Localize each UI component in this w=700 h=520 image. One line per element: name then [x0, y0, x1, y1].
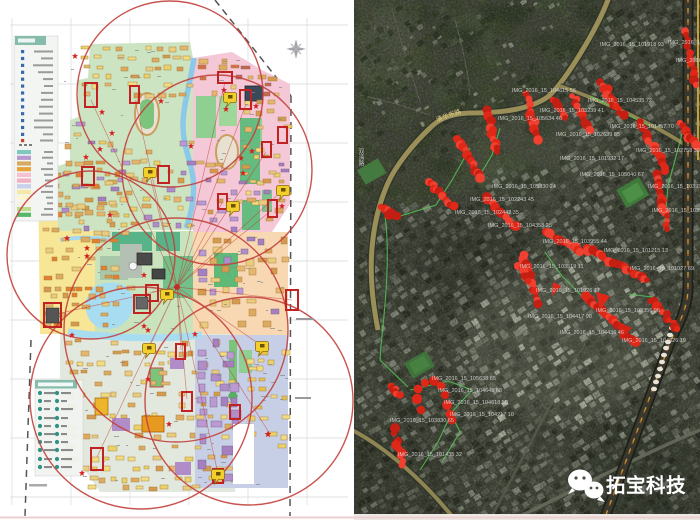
svg-text:IMG_2016_15_104645 68: IMG_2016_15_104645 68 — [438, 388, 502, 394]
svg-text:IMG_2016_15_103935 93: IMG_2016_15_103935 93 — [648, 184, 700, 190]
svg-text:IMG_2016_15_104535 72: IMG_2016_15_104535 72 — [588, 98, 652, 104]
svg-text:IMG_2016_15_101435 32: IMG_2016_15_101435 32 — [398, 452, 462, 458]
svg-text:双清路: 双清路 — [357, 148, 364, 167]
svg-text:IMG_2016_15_105330 24: IMG_2016_15_105330 24 — [492, 184, 556, 190]
svg-text:IMG_2016_15_101932 17: IMG_2016_15_101932 17 — [560, 156, 624, 162]
svg-text:IMG_2016_15_105638 85: IMG_2016_15_105638 85 — [432, 376, 496, 382]
svg-text:IMG_2016_15_103356 96: IMG_2016_15_103356 96 — [596, 308, 660, 314]
svg-text:IMG_2016_15_104615 56: IMG_2016_15_104615 56 — [512, 88, 576, 94]
svg-text:IMG_2016_15_104417 98: IMG_2016_15_104417 98 — [528, 314, 592, 320]
svg-text:IMG_2016_15_105040 67: IMG_2016_15_105040 67 — [580, 172, 644, 178]
svg-text:IMG_2016_15_102243 45: IMG_2016_15_102243 45 — [470, 197, 534, 203]
svg-text:IMG_2016_15_103955 44: IMG_2016_15_103955 44 — [543, 239, 607, 245]
svg-text:IMG_2016_15_101215 13: IMG_2016_15_101215 13 — [604, 248, 668, 254]
svg-text:IMG_2016_15_103239 41: IMG_2016_15_103239 41 — [540, 108, 604, 114]
svg-text:拓宝科技: 拓宝科技 — [606, 474, 686, 497]
svg-text:IMG_2016_15_101926 17: IMG_2016_15_101926 17 — [536, 288, 600, 294]
svg-text:IMG_2016_15_102758 39: IMG_2016_15_102758 39 — [636, 148, 700, 154]
svg-text:IMG_2016_15_101027 69: IMG_2016_15_101027 69 — [630, 266, 694, 272]
svg-text:IMG_2016_15_104631 53: IMG_2016_15_104631 53 — [668, 40, 700, 46]
svg-text:IMG_2016_15_104626 19: IMG_2016_15_104626 19 — [622, 338, 686, 344]
svg-text:IMG_2016_15_103519 11: IMG_2016_15_103519 11 — [520, 264, 584, 270]
svg-text:IMG_2016_15_101457 70: IMG_2016_15_101457 70 — [610, 124, 674, 130]
svg-text:IMG_2016_15_105634 46: IMG_2016_15_105634 46 — [498, 116, 562, 122]
svg-text:IMG_2016_15_103910 47: IMG_2016_15_103910 47 — [652, 208, 700, 214]
svg-text:IMG_2016_15_104358 25: IMG_2016_15_104358 25 — [488, 223, 552, 229]
svg-text:IMG_2016_15_104217 10: IMG_2016_15_104217 10 — [450, 412, 514, 418]
svg-text:IMG_2016_15_101435 49: IMG_2016_15_101435 49 — [676, 58, 700, 64]
svg-text:IMG_2016_15_102442 35: IMG_2016_15_102442 35 — [455, 210, 519, 216]
svg-text:IMG_2016_15_103830 65: IMG_2016_15_103830 65 — [390, 418, 454, 424]
svg-text:IMG_2016_15_104436 46: IMG_2016_15_104436 46 — [560, 330, 624, 336]
svg-text:IMG_2016_15_101918 93: IMG_2016_15_101918 93 — [600, 42, 664, 48]
svg-text:IMG_2016_15_102639 85: IMG_2016_15_102639 85 — [556, 132, 620, 138]
svg-text:IMG_2016_15_104618 50: IMG_2016_15_104618 50 — [444, 400, 508, 406]
